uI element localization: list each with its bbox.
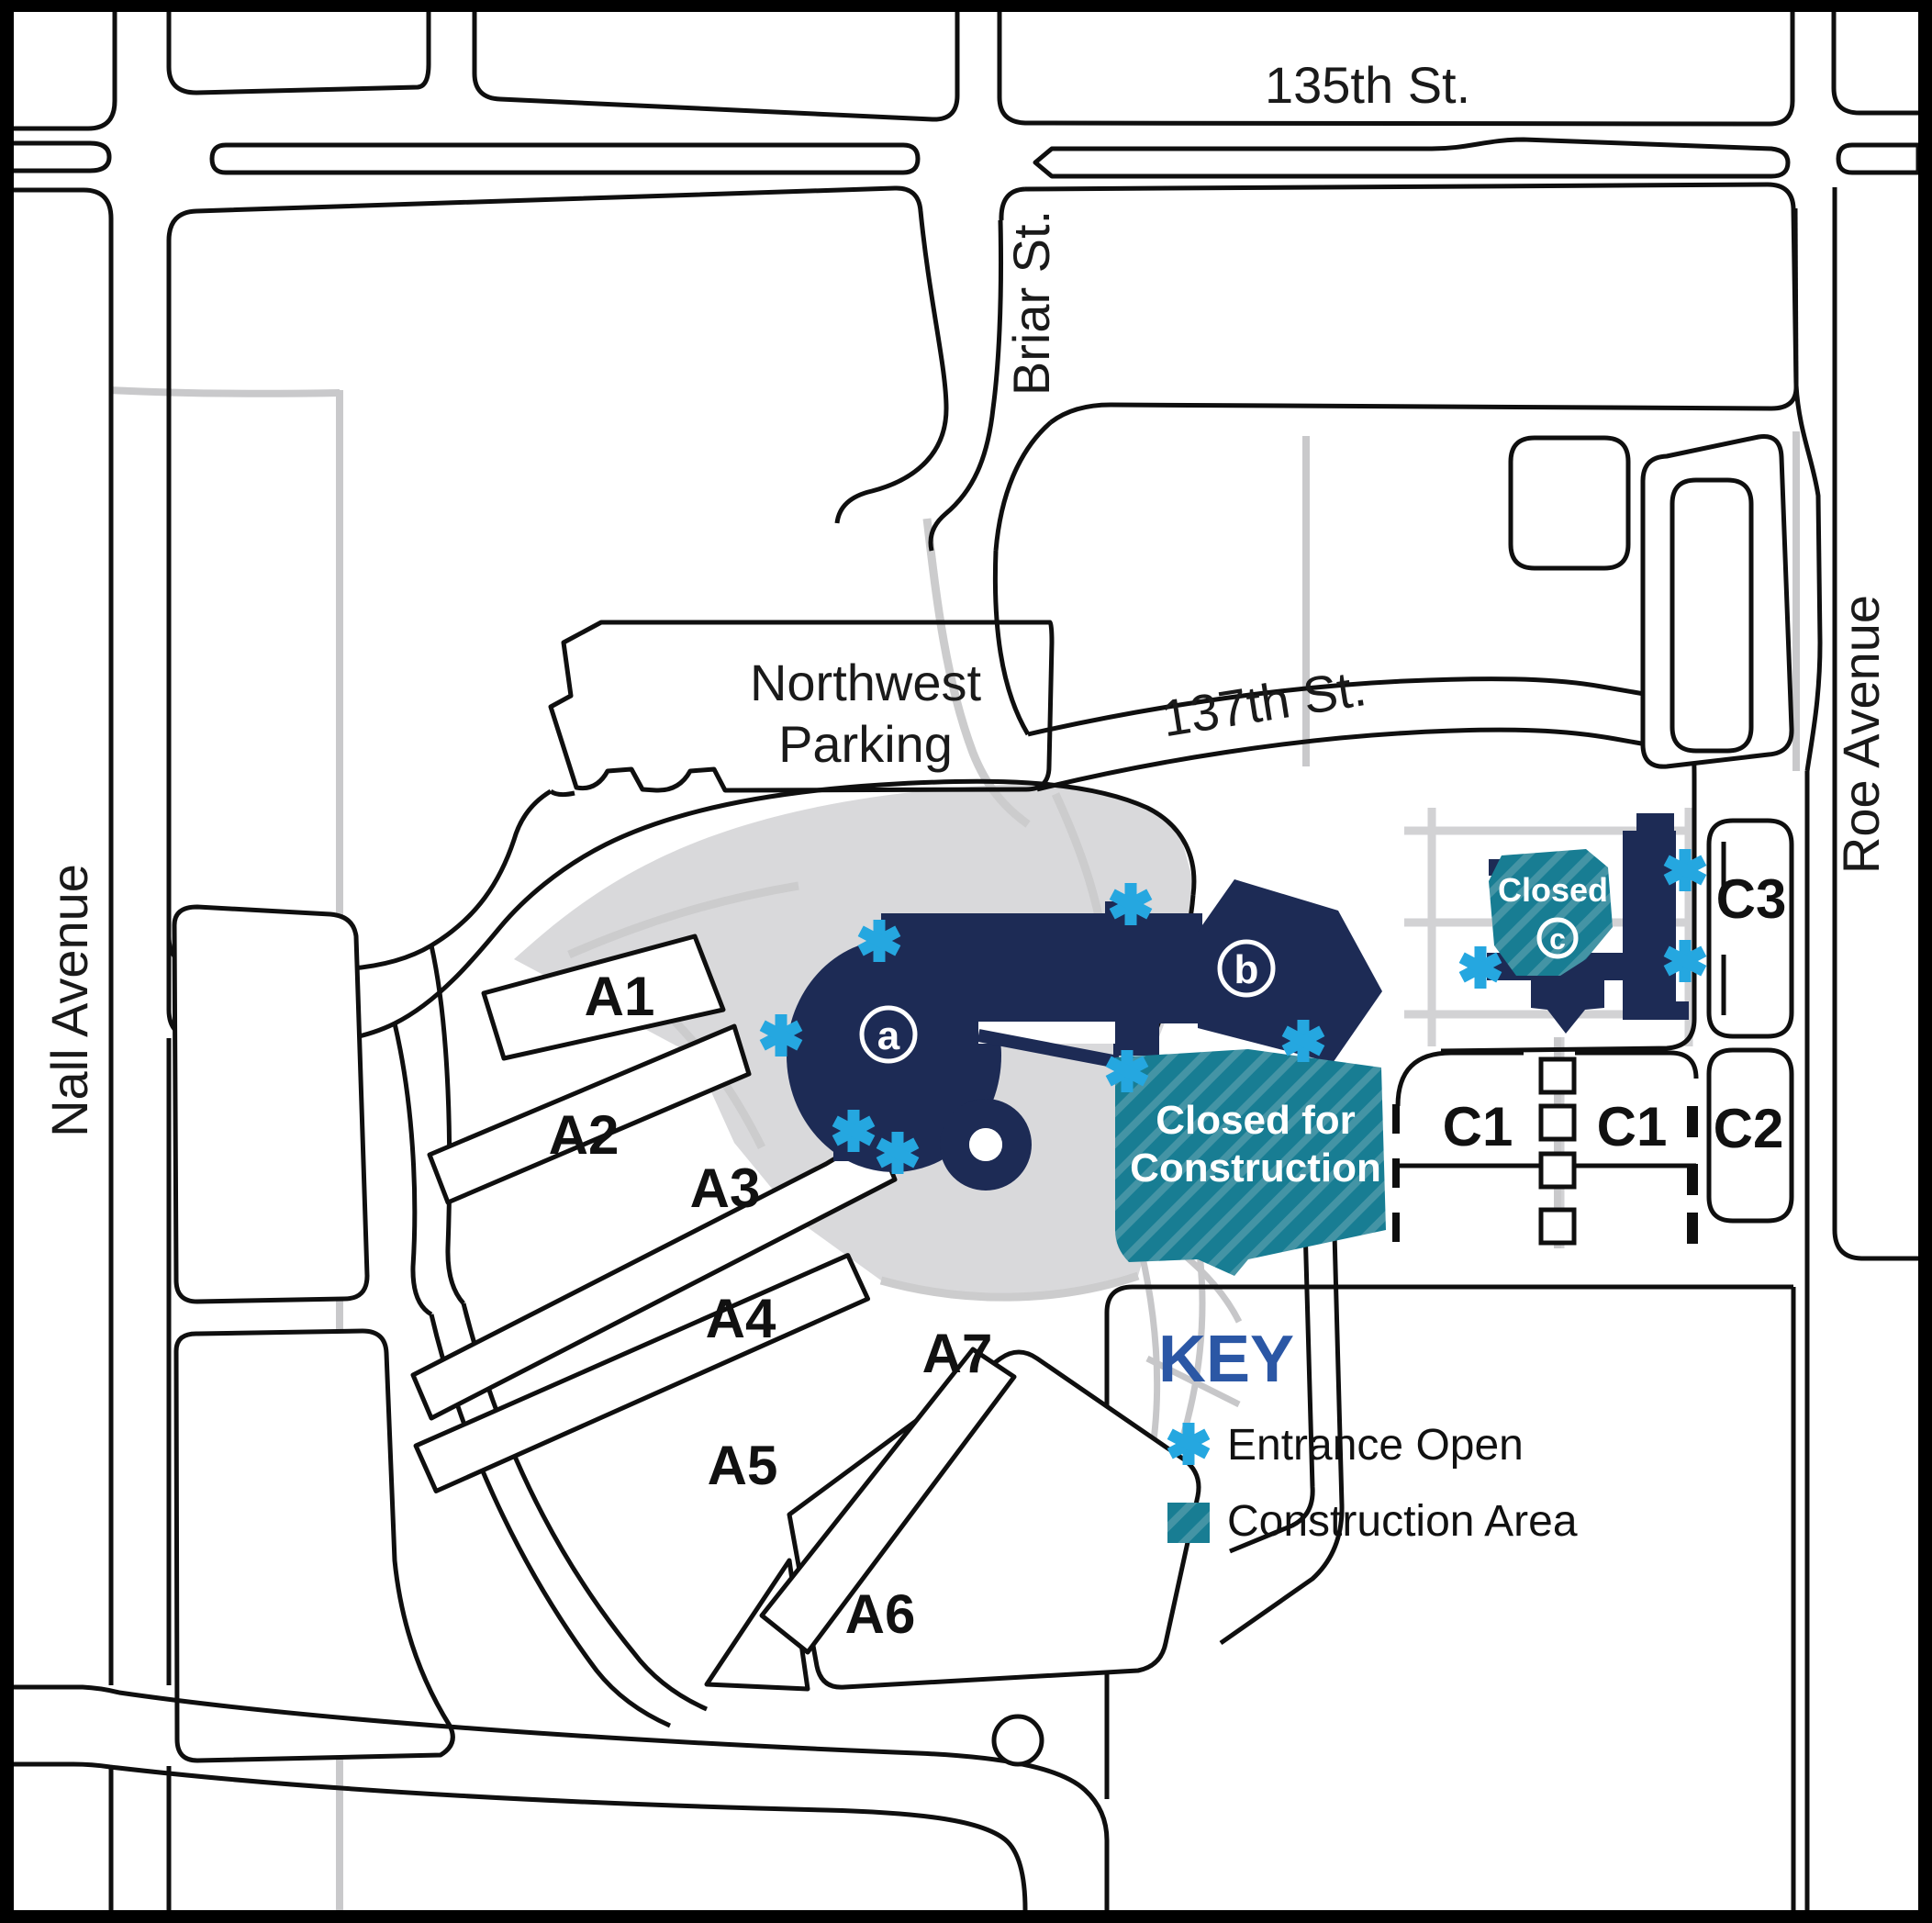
svg-text:Entrance Open: Entrance Open (1227, 1421, 1524, 1470)
svg-text:A5: A5 (708, 1435, 778, 1496)
svg-text:Nall Avenue: Nall Avenue (40, 864, 98, 1137)
svg-text:A3: A3 (690, 1157, 761, 1219)
svg-text:C1: C1 (1443, 1096, 1513, 1157)
svg-text:Closed for: Closed for (1156, 1098, 1356, 1143)
svg-text:a: a (877, 1013, 900, 1058)
svg-text:b: b (1234, 947, 1259, 992)
svg-text:A7: A7 (922, 1323, 993, 1384)
svg-text:Parking: Parking (778, 715, 953, 773)
svg-text:A1: A1 (585, 966, 655, 1027)
svg-text:c: c (1549, 922, 1566, 956)
svg-text:Roe Avenue: Roe Avenue (1832, 595, 1890, 874)
svg-text:Briar St.: Briar St. (1002, 210, 1060, 396)
svg-text:135th St.: 135th St. (1265, 56, 1470, 114)
svg-text:C2: C2 (1714, 1098, 1784, 1159)
svg-text:A2: A2 (549, 1104, 620, 1166)
svg-text:C1: C1 (1597, 1096, 1668, 1157)
svg-text:KEY: KEY (1158, 1323, 1294, 1396)
svg-text:A4: A4 (706, 1288, 776, 1349)
svg-text:Northwest: Northwest (750, 654, 982, 711)
svg-text:C3: C3 (1716, 868, 1787, 930)
svg-text:Closed: Closed (1498, 871, 1608, 909)
svg-text:A6: A6 (845, 1583, 916, 1645)
svg-text:Construction Area: Construction Area (1227, 1497, 1578, 1546)
svg-text:Construction: Construction (1130, 1146, 1381, 1191)
